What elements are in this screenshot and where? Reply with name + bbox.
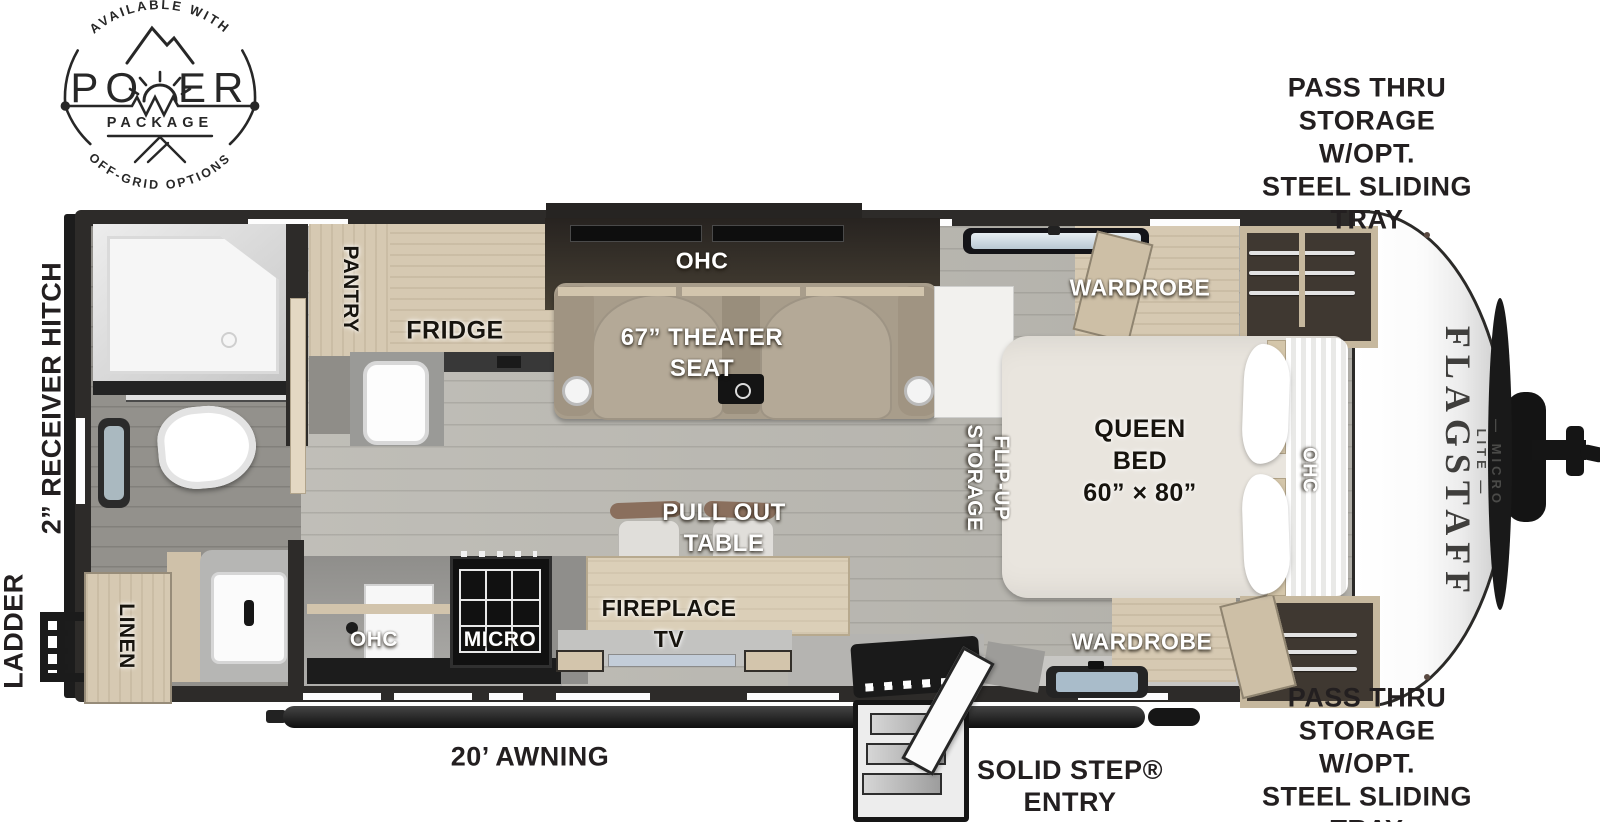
shower-drain-icon — [221, 332, 237, 348]
ladder-rung-1 — [44, 630, 68, 636]
wardrobe-offdoor-hanging — [1240, 226, 1378, 348]
fireplace-tv-label: FIREPLACE TV — [602, 593, 737, 655]
pass-thru-storage-label-bottom: PASS THRU STORAGE W/OPT. STEEL SLIDING T… — [1251, 682, 1484, 822]
counter-hatch-knob-icon — [1088, 661, 1104, 669]
bath-shelf — [167, 552, 201, 682]
badge-word-left: PO — [70, 64, 145, 111]
wardrobe-offdoor-label: WARDROBE — [1070, 275, 1211, 302]
window-bottom-2 — [394, 693, 472, 700]
awning-bar — [283, 706, 1145, 728]
counter-vent-icon — [497, 356, 521, 368]
skylight-knob-icon — [1048, 226, 1060, 235]
shower — [93, 224, 293, 384]
seat-trim-3 — [806, 287, 924, 296]
bath-vanity — [200, 550, 292, 682]
flip-up-storage-label: FLIP-UP STORAGE — [961, 425, 1015, 532]
step-tread-3 — [862, 773, 942, 795]
seat-control-icon — [735, 383, 751, 399]
slideout-window-1 — [570, 225, 702, 242]
cupholder-right-icon — [904, 376, 934, 406]
badge-arc-bottom-text: OFF-GRID OPTIONS — [86, 150, 234, 192]
seat-trim-1 — [558, 287, 676, 296]
bathroom-pocket-door — [290, 298, 306, 494]
slideout-window-2 — [712, 225, 844, 242]
ladder-rung-2 — [44, 648, 68, 654]
shower-pan — [107, 236, 279, 374]
bed-ohc-label: OHC — [1298, 447, 1321, 493]
solid-step-entry-label: SOLID STEP® ENTRY — [977, 754, 1163, 818]
theater-seat-label: 67” THEATER SEAT — [621, 322, 783, 384]
ladder-label: LADDER — [0, 573, 30, 689]
shower-ledge — [93, 381, 293, 395]
power-package-badge: AVAILABLE WITH OFF-GRID OPTIONS PO ER PA… — [50, 0, 290, 210]
queen-bed-label: QUEEN BED 60” × 80” — [1083, 413, 1197, 509]
ladder-rail-left — [40, 612, 48, 682]
kitchen-shelf-1 — [307, 604, 437, 614]
pillow-top — [1241, 343, 1291, 465]
pillow-bottom — [1241, 473, 1291, 595]
pantry-label: PANTRY — [338, 246, 362, 333]
window-bottom-1 — [303, 693, 381, 700]
seat-trim-2 — [682, 287, 800, 296]
window-bottom-5 — [747, 693, 839, 700]
galley-sink-counter — [350, 352, 444, 446]
badge-arc-top-text: AVAILABLE WITH — [86, 0, 233, 36]
wardrobe-divider — [1299, 233, 1305, 327]
bath-mirror-glass — [104, 426, 124, 500]
kitchen-ohc-label: OHC — [350, 628, 398, 652]
brand-name: FLAGSTAFF — [1437, 326, 1479, 600]
awning-label: 20’ AWNING — [451, 742, 610, 773]
cooktop-knobs-icon — [461, 551, 537, 557]
shower-track — [126, 395, 296, 400]
tv-side-table-right — [744, 650, 792, 672]
linen-label: LINEN — [114, 603, 138, 669]
tv-side-table-left — [556, 650, 604, 672]
wardrobe-door-label: WARDROBE — [1072, 629, 1213, 656]
pull-out-table-label: PULL OUT TABLE — [662, 497, 786, 559]
receiver-hitch-label: 2” RECEIVER HITCH — [37, 262, 68, 535]
fridge-label: FRIDGE — [406, 317, 503, 346]
window-top-3 — [1150, 219, 1240, 226]
floorplan-page: AVAILABLE WITH OFF-GRID OPTIONS PO ER PA… — [0, 0, 1600, 822]
badge-subtitle: PACKAGE — [107, 115, 213, 131]
awning-end-cap — [1148, 708, 1200, 726]
counter-hatch-glass — [1056, 672, 1138, 692]
cupholder-left-icon — [562, 376, 592, 406]
ladder-rung-3 — [44, 664, 68, 670]
cap-rivet-bottom — [1424, 674, 1430, 680]
bath-mirror — [98, 418, 130, 508]
micro-label: MICRO — [464, 628, 537, 652]
brand-series: — MICRO LITE — — [1474, 408, 1504, 519]
badge-word-right: ER — [178, 64, 250, 111]
bath-faucet-icon — [244, 600, 254, 626]
window-rear — [76, 418, 85, 504]
window-bottom-3 — [489, 693, 523, 700]
tv-screen — [608, 654, 736, 667]
counter-hatch — [1046, 666, 1148, 698]
pass-thru-storage-label-top: PASS THRU STORAGE W/OPT. STEEL SLIDING T… — [1251, 72, 1484, 237]
kitchen-divider-wall — [288, 540, 304, 686]
window-bottom-4 — [556, 693, 650, 700]
slide-ohc-label: OHC — [676, 248, 729, 275]
galley-sink — [363, 361, 429, 445]
